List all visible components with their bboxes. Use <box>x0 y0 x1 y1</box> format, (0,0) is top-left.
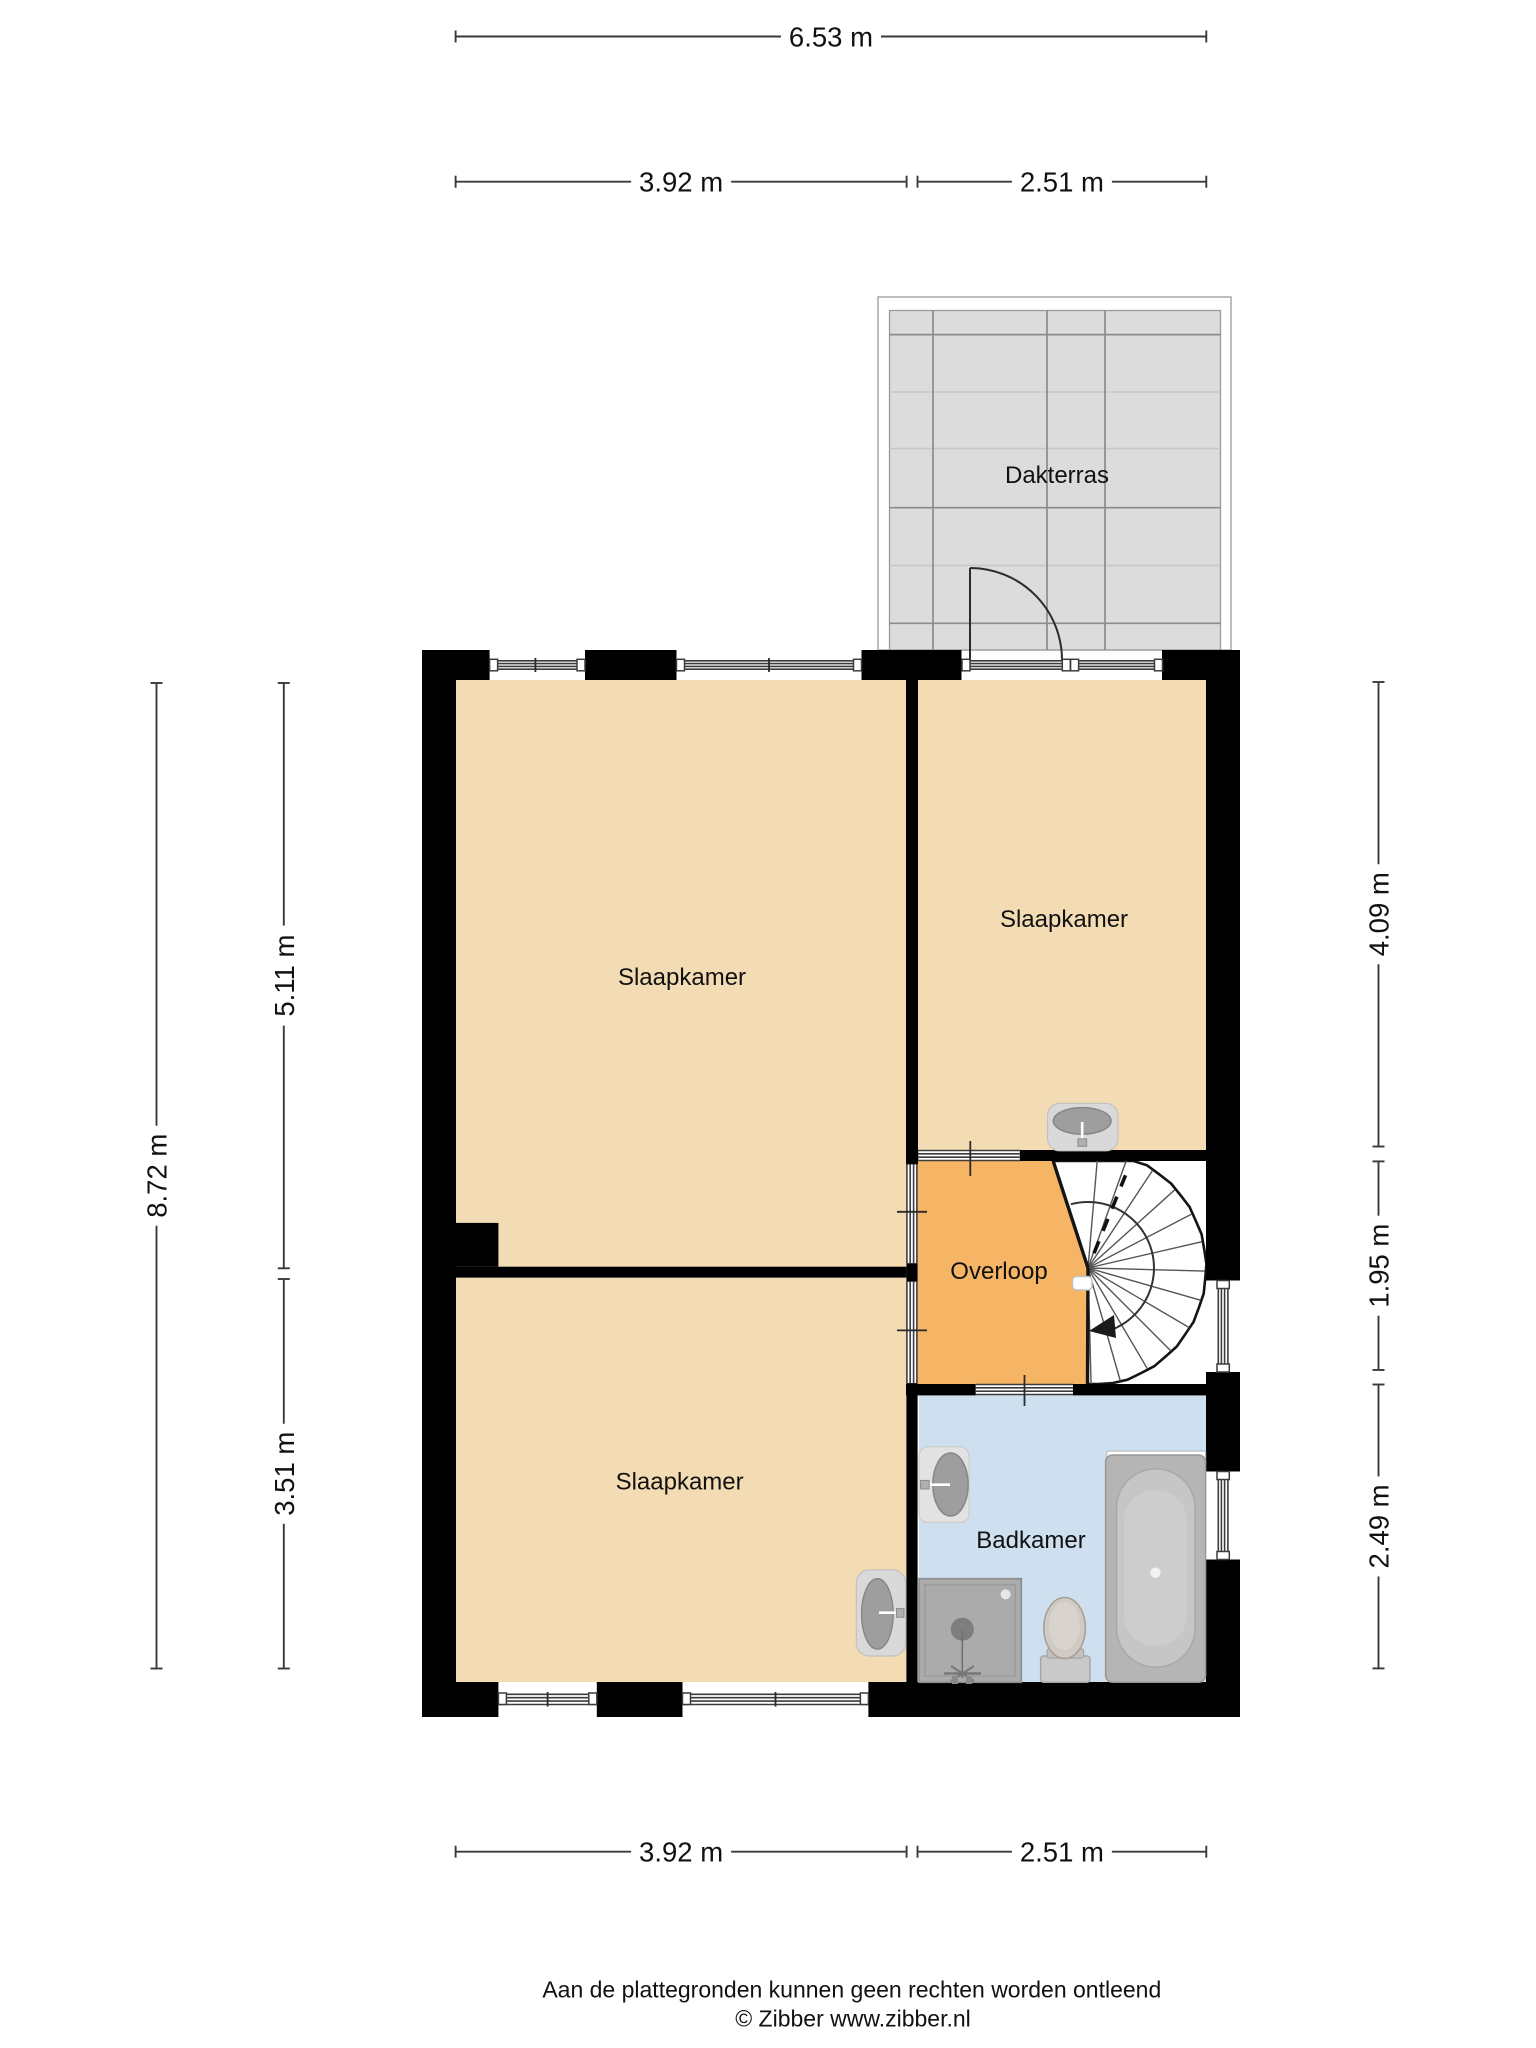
svg-text:3.92 m: 3.92 m <box>639 1837 723 1868</box>
svg-text:6.53 m: 6.53 m <box>789 22 873 53</box>
svg-text:Slaapkamer: Slaapkamer <box>616 1468 744 1495</box>
svg-text:© Zibber www.zibber.nl: © Zibber www.zibber.nl <box>735 2005 971 2031</box>
svg-text:5.11 m: 5.11 m <box>269 935 300 1017</box>
svg-text:1.95 m: 1.95 m <box>1364 1224 1395 1308</box>
svg-text:Overloop: Overloop <box>950 1258 1047 1285</box>
svg-text:Slaapkamer: Slaapkamer <box>1000 906 1128 933</box>
svg-text:2.51 m: 2.51 m <box>1020 167 1104 198</box>
svg-text:3.92 m: 3.92 m <box>639 167 723 198</box>
svg-text:Badkamer: Badkamer <box>976 1527 1085 1554</box>
svg-text:2.49 m: 2.49 m <box>1364 1484 1395 1568</box>
svg-text:8.72 m: 8.72 m <box>142 1134 173 1218</box>
svg-text:Aan de plattegronden kunnen ge: Aan de plattegronden kunnen geen rechten… <box>542 1977 1161 2003</box>
svg-text:4.09 m: 4.09 m <box>1364 872 1395 956</box>
svg-text:3.51 m: 3.51 m <box>269 1432 300 1516</box>
svg-text:Dakterras: Dakterras <box>1005 462 1109 489</box>
svg-text:Slaapkamer: Slaapkamer <box>618 964 746 991</box>
svg-text:2.51 m: 2.51 m <box>1020 1837 1104 1868</box>
